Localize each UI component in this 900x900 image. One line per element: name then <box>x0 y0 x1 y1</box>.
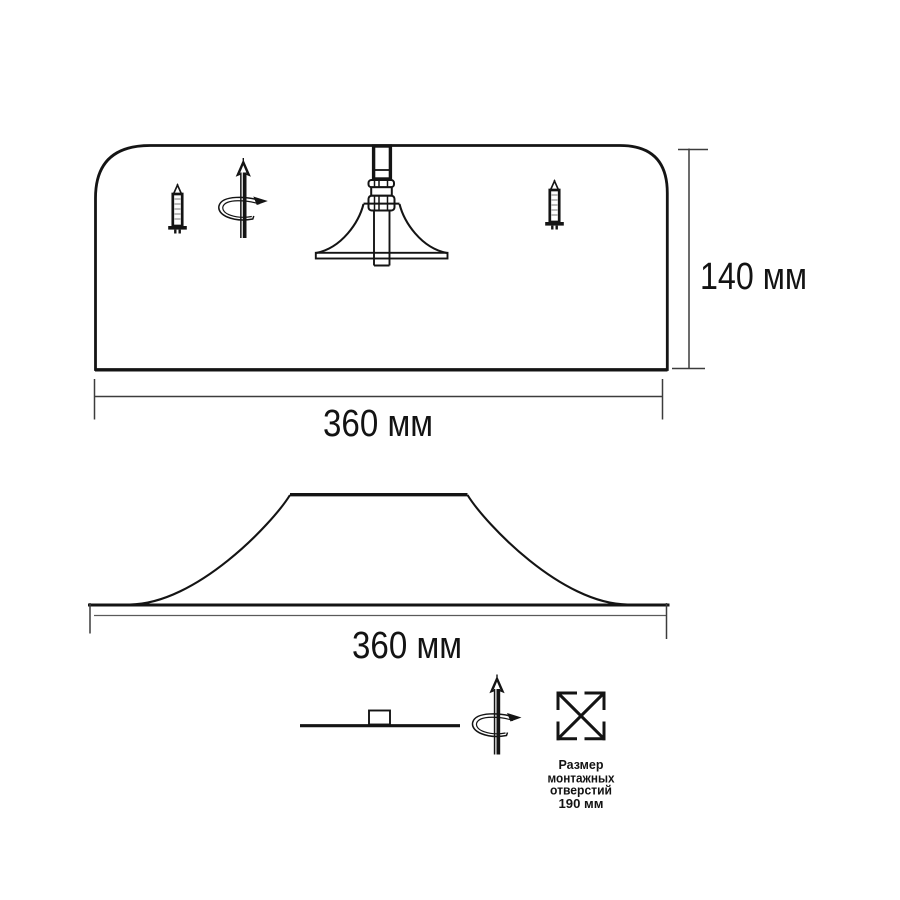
svg-text:140 мм: 140 мм <box>700 256 807 298</box>
svg-text:360 мм: 360 мм <box>323 403 433 445</box>
svg-text:360 мм: 360 мм <box>352 625 462 667</box>
svg-text:190 мм: 190 мм <box>559 796 604 811</box>
